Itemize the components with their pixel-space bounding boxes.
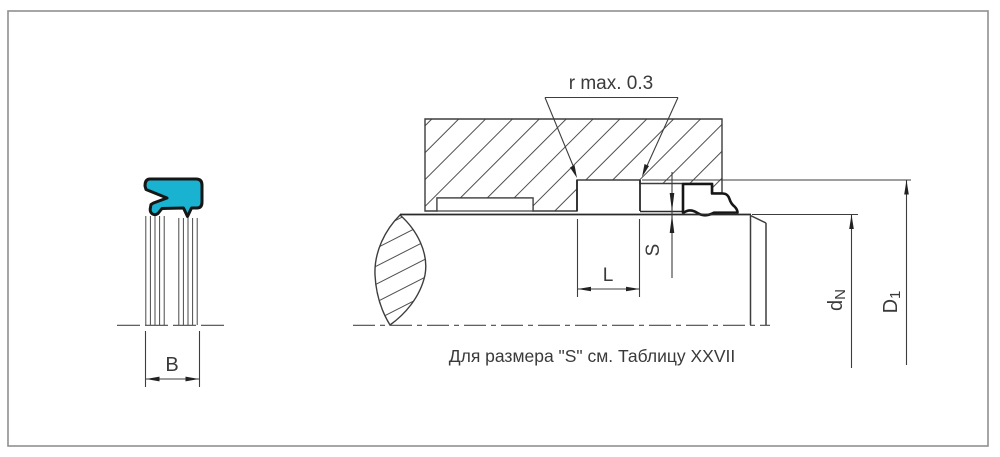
arrow-left-icon xyxy=(578,287,592,292)
guide-ring xyxy=(437,198,533,211)
dim-label-dn: dN xyxy=(825,289,849,311)
dim-label-l: L xyxy=(603,265,614,286)
arrow-right-icon xyxy=(186,377,200,382)
arrow-left-icon xyxy=(146,377,160,382)
dim-label-b: B xyxy=(165,354,178,376)
arrow-right-icon xyxy=(626,287,640,292)
seal-profile-head xyxy=(145,179,202,217)
housing-section xyxy=(425,119,722,211)
arrow-up-icon xyxy=(904,180,909,195)
dimension-s: S xyxy=(643,172,674,278)
elastomer-hatch-lines xyxy=(146,216,197,325)
arrow-up-icon xyxy=(670,215,675,233)
rod-end xyxy=(751,216,767,326)
caption: Для размера "S" см. Таблицу XXVII xyxy=(449,346,736,366)
radius-note-label: r max. 0.3 xyxy=(569,73,653,94)
technical-drawing: B r max. 0.3 xyxy=(0,0,1000,457)
rod-break-lens xyxy=(375,215,426,325)
dimension-l: L xyxy=(578,219,640,297)
arrow-up-icon xyxy=(849,215,854,230)
arrow-down-icon xyxy=(670,193,675,212)
dimension-dn: dN xyxy=(752,215,858,369)
wiper-seal-installed xyxy=(683,184,738,215)
installation-view: r max. 0.3 L S xyxy=(353,73,911,368)
dim-label-d1: D1 xyxy=(880,291,904,314)
dim-label-s: S xyxy=(643,244,664,257)
seal-cross-section-view: B xyxy=(117,179,228,387)
